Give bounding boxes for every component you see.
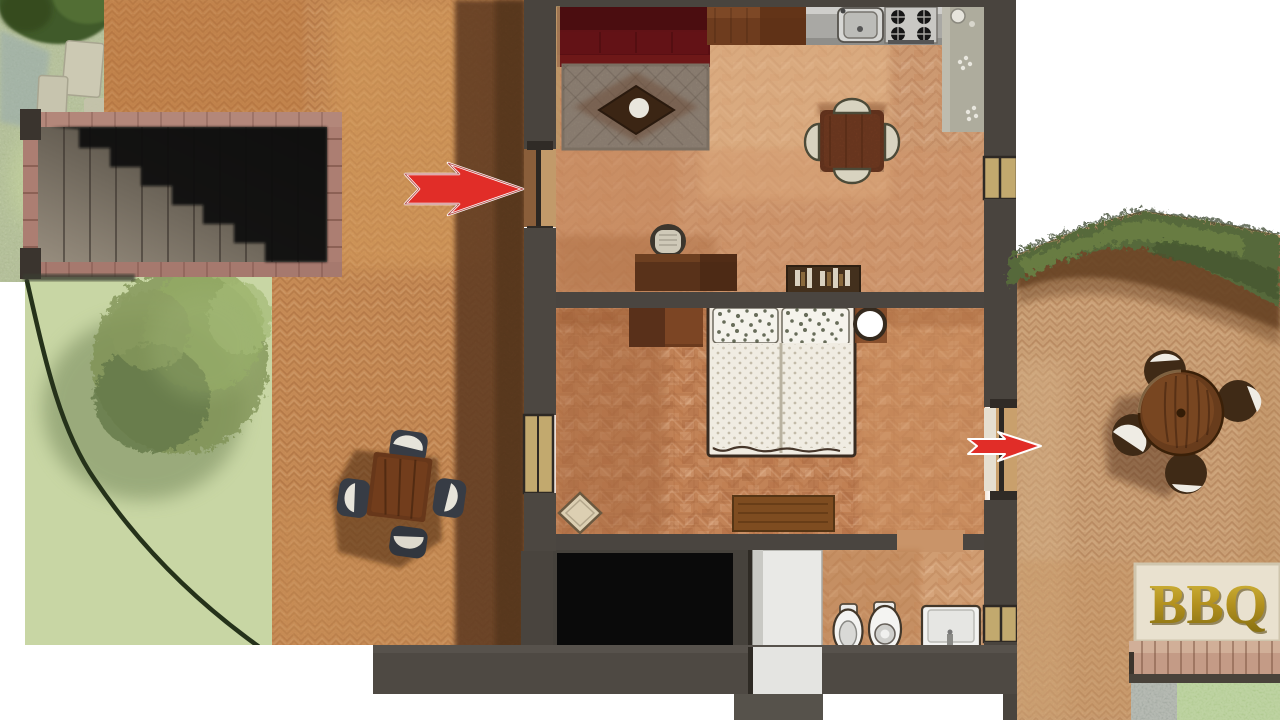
svg-text:BBQ: BBQ <box>1149 574 1267 636</box>
